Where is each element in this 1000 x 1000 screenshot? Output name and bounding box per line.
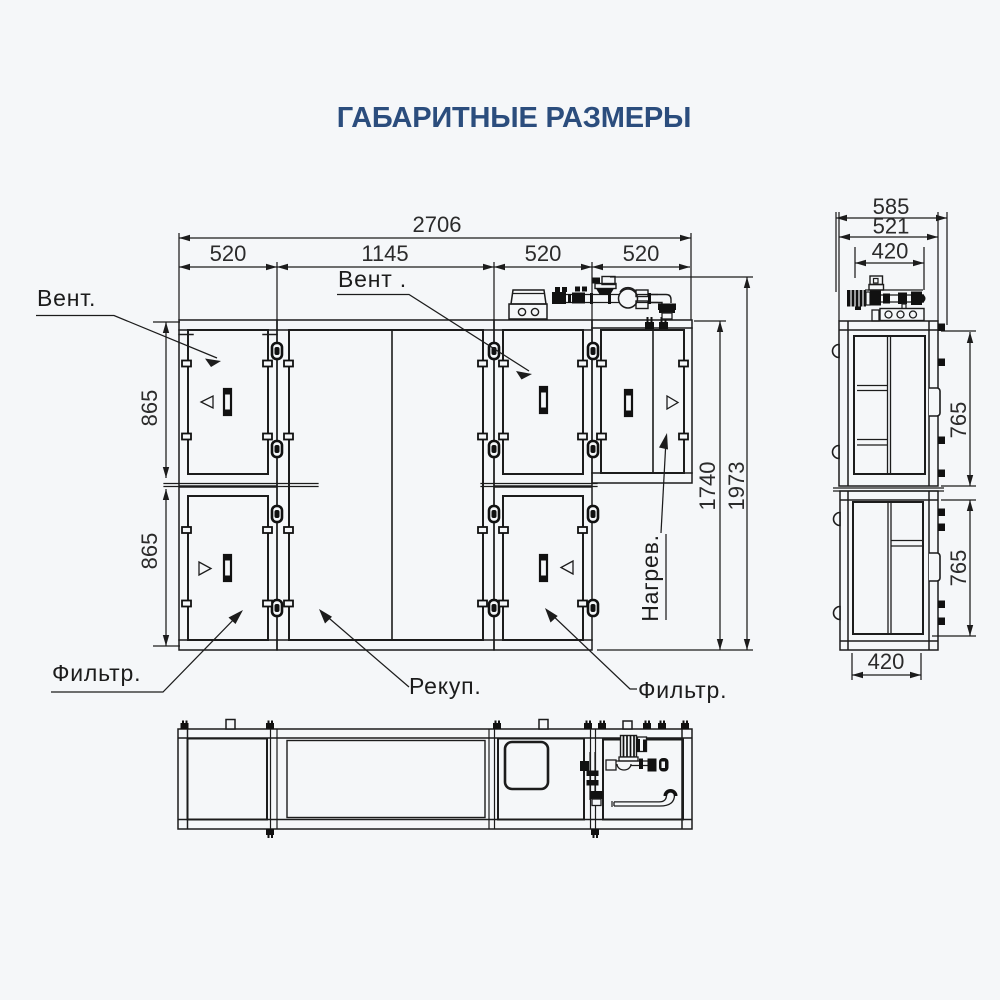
- svg-text:520: 520: [210, 241, 247, 266]
- svg-text:521: 521: [873, 214, 910, 239]
- svg-text:420: 420: [872, 239, 909, 264]
- svg-text:865: 865: [137, 390, 162, 427]
- svg-text:Фильтр.: Фильтр.: [638, 677, 727, 703]
- svg-text:2706: 2706: [413, 212, 462, 237]
- svg-text:420: 420: [868, 649, 905, 674]
- svg-text:1973: 1973: [724, 462, 749, 511]
- svg-text:765: 765: [946, 402, 971, 439]
- svg-text:Фильтр.: Фильтр.: [52, 660, 141, 686]
- svg-text:765: 765: [946, 550, 971, 587]
- svg-text:1145: 1145: [361, 241, 408, 266]
- svg-text:ГАБАРИТНЫЕ РАЗМЕРЫ: ГАБАРИТНЫЕ РАЗМЕРЫ: [337, 102, 691, 134]
- svg-text:Вент.: Вент.: [37, 285, 96, 311]
- svg-text:865: 865: [137, 533, 162, 570]
- svg-text:Нагрев.: Нагрев.: [637, 534, 663, 622]
- svg-text:1740: 1740: [695, 462, 720, 511]
- svg-text:Рекуп.: Рекуп.: [409, 673, 482, 699]
- svg-text:520: 520: [525, 241, 562, 266]
- svg-text:Вент .: Вент .: [338, 266, 407, 292]
- svg-text:520: 520: [623, 241, 660, 266]
